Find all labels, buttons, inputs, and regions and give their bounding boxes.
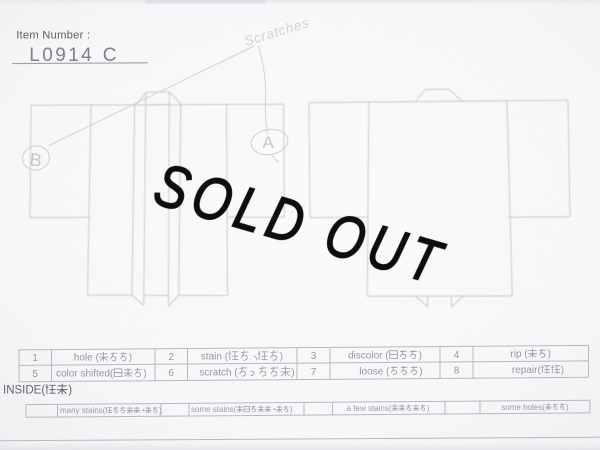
svg-text:): ): [159, 406, 162, 415]
svg-text:3: 3: [311, 351, 317, 362]
svg-text:5: 5: [32, 369, 38, 380]
svg-text:): ): [419, 366, 422, 377]
svg-text:6: 6: [168, 368, 174, 379]
svg-text:): ): [548, 349, 551, 360]
svg-text:): ): [143, 369, 146, 380]
svg-text:rip (: rip (: [510, 349, 528, 360]
svg-text:): ): [419, 350, 422, 361]
svg-text:): ): [566, 403, 569, 412]
svg-text:stain (: stain (: [201, 352, 229, 363]
svg-text:8: 8: [454, 366, 460, 377]
svg-text:repair(: repair(: [512, 365, 542, 376]
svg-text:A: A: [263, 133, 275, 152]
svg-text:loose (: loose (: [359, 366, 390, 377]
svg-text:color shifted(: color shifted(: [56, 369, 114, 380]
svg-text:scratch (: scratch (: [199, 367, 238, 378]
svg-text:): ): [68, 385, 72, 397]
svg-text:): ): [280, 352, 283, 363]
svg-text:2: 2: [168, 352, 174, 363]
svg-text:some holes(: some holes(: [501, 403, 545, 412]
svg-text:4: 4: [454, 350, 460, 361]
svg-text:): ): [561, 365, 564, 376]
svg-text:discolor (: discolor (: [348, 350, 389, 361]
svg-text:): ): [290, 405, 293, 414]
svg-text:Item Number :: Item Number :: [16, 30, 90, 42]
svg-text:1: 1: [32, 353, 38, 364]
svg-text:): ): [291, 367, 294, 378]
svg-text:): ): [129, 353, 132, 364]
svg-text:hole (: hole (: [74, 353, 100, 364]
svg-text:many stains(: many stains(: [60, 406, 106, 415]
svg-text:INSIDE(: INSIDE(: [3, 385, 45, 397]
svg-text:some stains(: some stains(: [191, 405, 237, 414]
svg-text:a few stains(: a few stains(: [347, 404, 392, 413]
svg-text:7: 7: [311, 367, 317, 378]
svg-text:): ): [427, 404, 430, 413]
